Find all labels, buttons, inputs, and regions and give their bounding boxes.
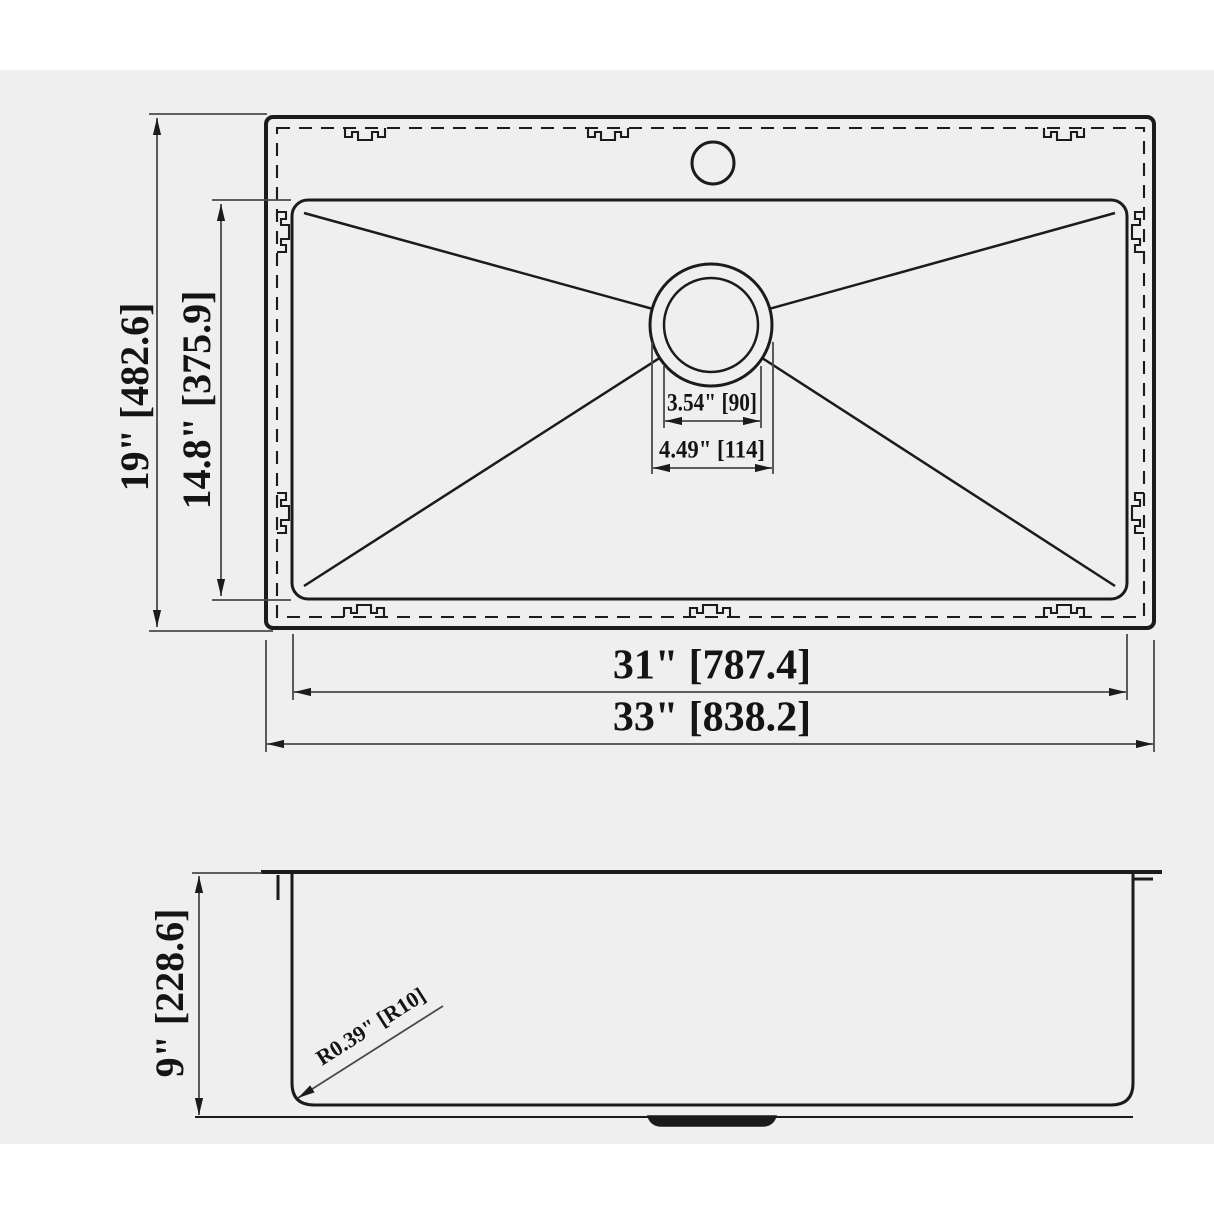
drain-opening-outer — [650, 264, 772, 386]
dim-height-bowl-label: 14.8" [375.9] — [174, 291, 219, 510]
drawing-canvas: 19" [482.6] 14.8" [375.9] 3.54" [90] 4.4… — [0, 0, 1214, 1214]
drain-boss — [648, 1116, 776, 1126]
dim-drain-outer-label: 4.49" [114] — [659, 437, 765, 464]
dim-width-bowl-label: 31" [787.4] — [613, 643, 811, 689]
dim-depth-label: 9" [228.6] — [147, 909, 192, 1078]
sink-spec-drawing: 19" [482.6] 14.8" [375.9] 3.54" [90] 4.4… — [0, 0, 1214, 1214]
dim-width-outer-label: 33" [838.2] — [613, 695, 811, 741]
dim-height-outer-label: 19" [482.6] — [112, 303, 157, 492]
dim-drain-inner-label: 3.54" [90] — [667, 390, 757, 417]
